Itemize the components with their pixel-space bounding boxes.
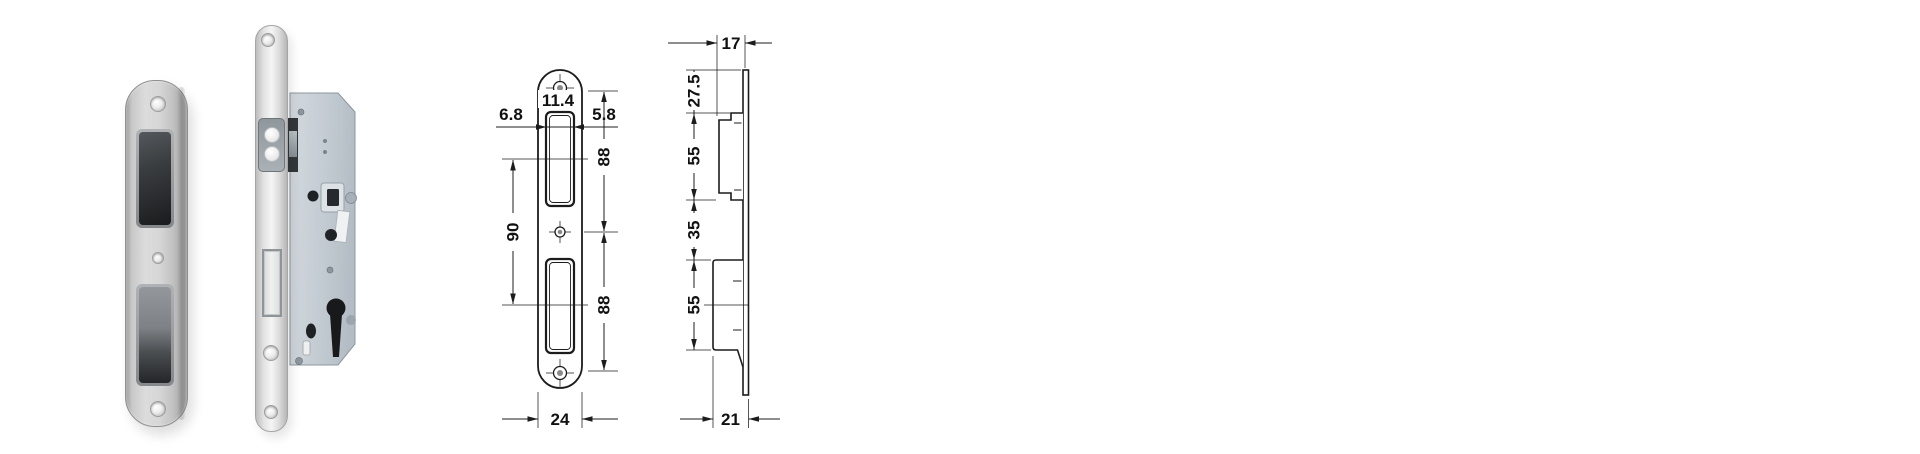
strike-plate-screw-hole-middle [152, 252, 164, 264]
lock-latch-bolt [288, 118, 298, 172]
side-magnet-housing-upper [719, 113, 743, 200]
dim-label-middle-gap: 35 [685, 221, 704, 240]
dim-label-offset-left: 6.8 [499, 105, 523, 124]
dim-label-upper-spacing: 88 [595, 148, 614, 167]
strike-plate-opening-top [136, 129, 174, 228]
strike-plate-cavity-bottom [139, 287, 171, 383]
dim-label-overall-depth: 21 [721, 410, 740, 429]
strike-plate-photo [125, 80, 188, 427]
dim-label-lower-magnet: 55 [685, 296, 704, 315]
product-image-canvas: 6.8 11.4 5.8 90 88 [0, 0, 1920, 454]
faceplate-deadbolt-slot [262, 249, 282, 317]
dim-label-lower-spacing: 88 [595, 296, 614, 315]
technical-drawing: 6.8 11.4 5.8 90 88 [480, 20, 800, 450]
dim-label-top-offset: 27.5 [685, 74, 704, 107]
side-magnet-housing-lower [704, 260, 749, 367]
latch-magnet-upper [264, 127, 280, 143]
faceplate-screw-hole-top [261, 33, 275, 47]
front-view-drawing: 6.8 11.4 5.8 90 88 [496, 70, 618, 429]
faceplate-screw-hole-bottom [264, 405, 278, 419]
dim-label-slot-width: 11.4 [542, 91, 575, 110]
strike-plate-opening-bottom [136, 284, 174, 386]
dim-label-upper-magnet: 55 [685, 147, 704, 166]
lock-case-photo [286, 90, 358, 368]
dim-label-plate-depth: 17 [722, 34, 741, 53]
side-plate-profile [743, 70, 749, 395]
faceplate-magnet-latch [258, 118, 285, 172]
front-dim-lower-spacing: 88 [588, 233, 618, 372]
faceplate-screw-hole-middle [263, 345, 279, 361]
front-dim-slot-centers: 90 [504, 160, 523, 304]
side-dim-overall-depth: 21 [680, 356, 780, 429]
front-dim-plate-width: 24 [502, 392, 618, 429]
strike-plate-edge-lip [177, 87, 185, 420]
side-view-drawing: 27.5 55 35 55 17 [668, 34, 780, 429]
latch-magnet-lower [264, 146, 280, 162]
strike-plate-cavity-top [139, 132, 171, 225]
dim-label-plate-width: 24 [551, 410, 570, 429]
strike-plate-screw-hole-top [150, 96, 166, 112]
lock-faceplate-photo [255, 25, 288, 432]
strike-plate-screw-hole-bottom [150, 401, 166, 417]
dim-label-slot-centers: 90 [504, 223, 523, 242]
